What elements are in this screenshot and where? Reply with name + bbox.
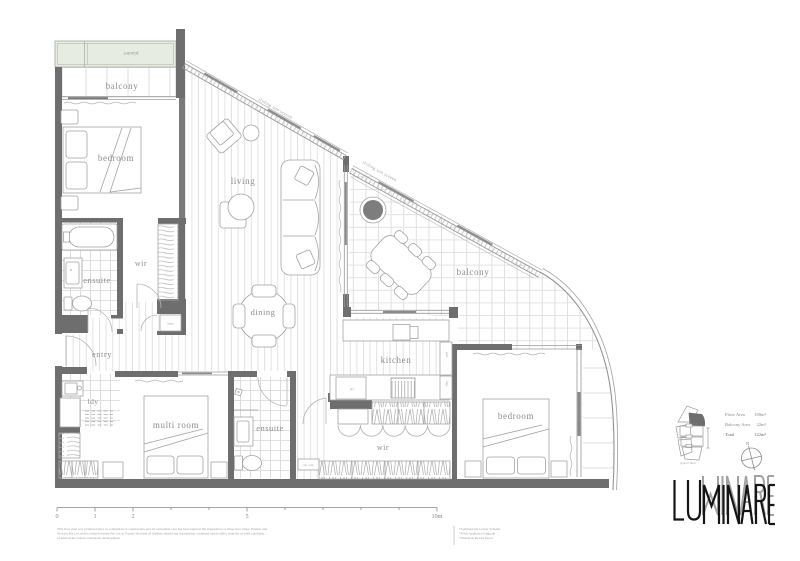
svg-text:This floor plan was produced p: This floor plan was produced prior to co…: [57, 527, 267, 531]
svg-text:ensuite: ensuite: [256, 423, 284, 433]
svg-text:0: 0: [55, 513, 58, 520]
svg-text:gas | wm: gas | wm: [304, 464, 315, 467]
svg-text:Floor Area: Floor Area: [725, 412, 745, 417]
svg-text:entry: entry: [92, 349, 112, 359]
svg-text:fdge: fdge: [445, 381, 449, 387]
svg-text:multi room: multi room: [153, 420, 199, 430]
svg-text:22m²: 22m²: [756, 422, 766, 427]
svg-text:pant: pant: [445, 352, 449, 357]
svg-text:pty: pty: [350, 387, 355, 391]
svg-text:of units in the actual constru: of units in the actual constructed devel…: [57, 536, 121, 540]
svg-text:living: living: [231, 176, 256, 186]
svg-text:2: 2: [131, 513, 134, 520]
svg-text:100m²: 100m²: [754, 412, 766, 417]
svg-text:*Walnut & Pewter Decor: *Walnut & Pewter Decor: [459, 536, 494, 540]
svg-text:kitchen: kitchen: [381, 355, 412, 365]
svg-text:wir: wir: [377, 443, 389, 452]
svg-text:balcony: balcony: [106, 81, 139, 91]
svg-text:ensuite: ensuite: [83, 275, 111, 285]
svg-text:Victoria Pty Ltd and its relat: Victoria Pty Ltd and its related entitie…: [57, 532, 264, 536]
svg-text:bedroom: bedroom: [498, 411, 534, 421]
svg-text:dining: dining: [251, 307, 276, 317]
svg-text:N: N: [746, 441, 750, 446]
svg-text:122m²: 122m²: [754, 432, 766, 437]
svg-text:linen: linen: [168, 322, 174, 326]
svg-text:ldy: ldy: [88, 397, 99, 406]
svg-text:5: 5: [245, 513, 248, 520]
svg-text:bedroom: bedroom: [98, 153, 134, 163]
svg-text:Balcony Area: Balcony Area: [725, 422, 750, 427]
svg-text:balcony: balcony: [457, 267, 490, 277]
svg-text:1: 1: [93, 513, 96, 520]
svg-text:planter: planter: [123, 50, 138, 56]
svg-text:10m: 10m: [431, 513, 442, 520]
svg-text:*Wick Appliance Upgrade: *Wick Appliance Upgrade: [459, 532, 496, 536]
svg-text:*Luminescent Colour Scheme: *Luminescent Colour Scheme: [459, 527, 501, 531]
svg-text:typical floor: typical floor: [680, 461, 697, 465]
svg-text:wir: wir: [135, 259, 147, 268]
svg-text:Total: Total: [725, 432, 735, 437]
